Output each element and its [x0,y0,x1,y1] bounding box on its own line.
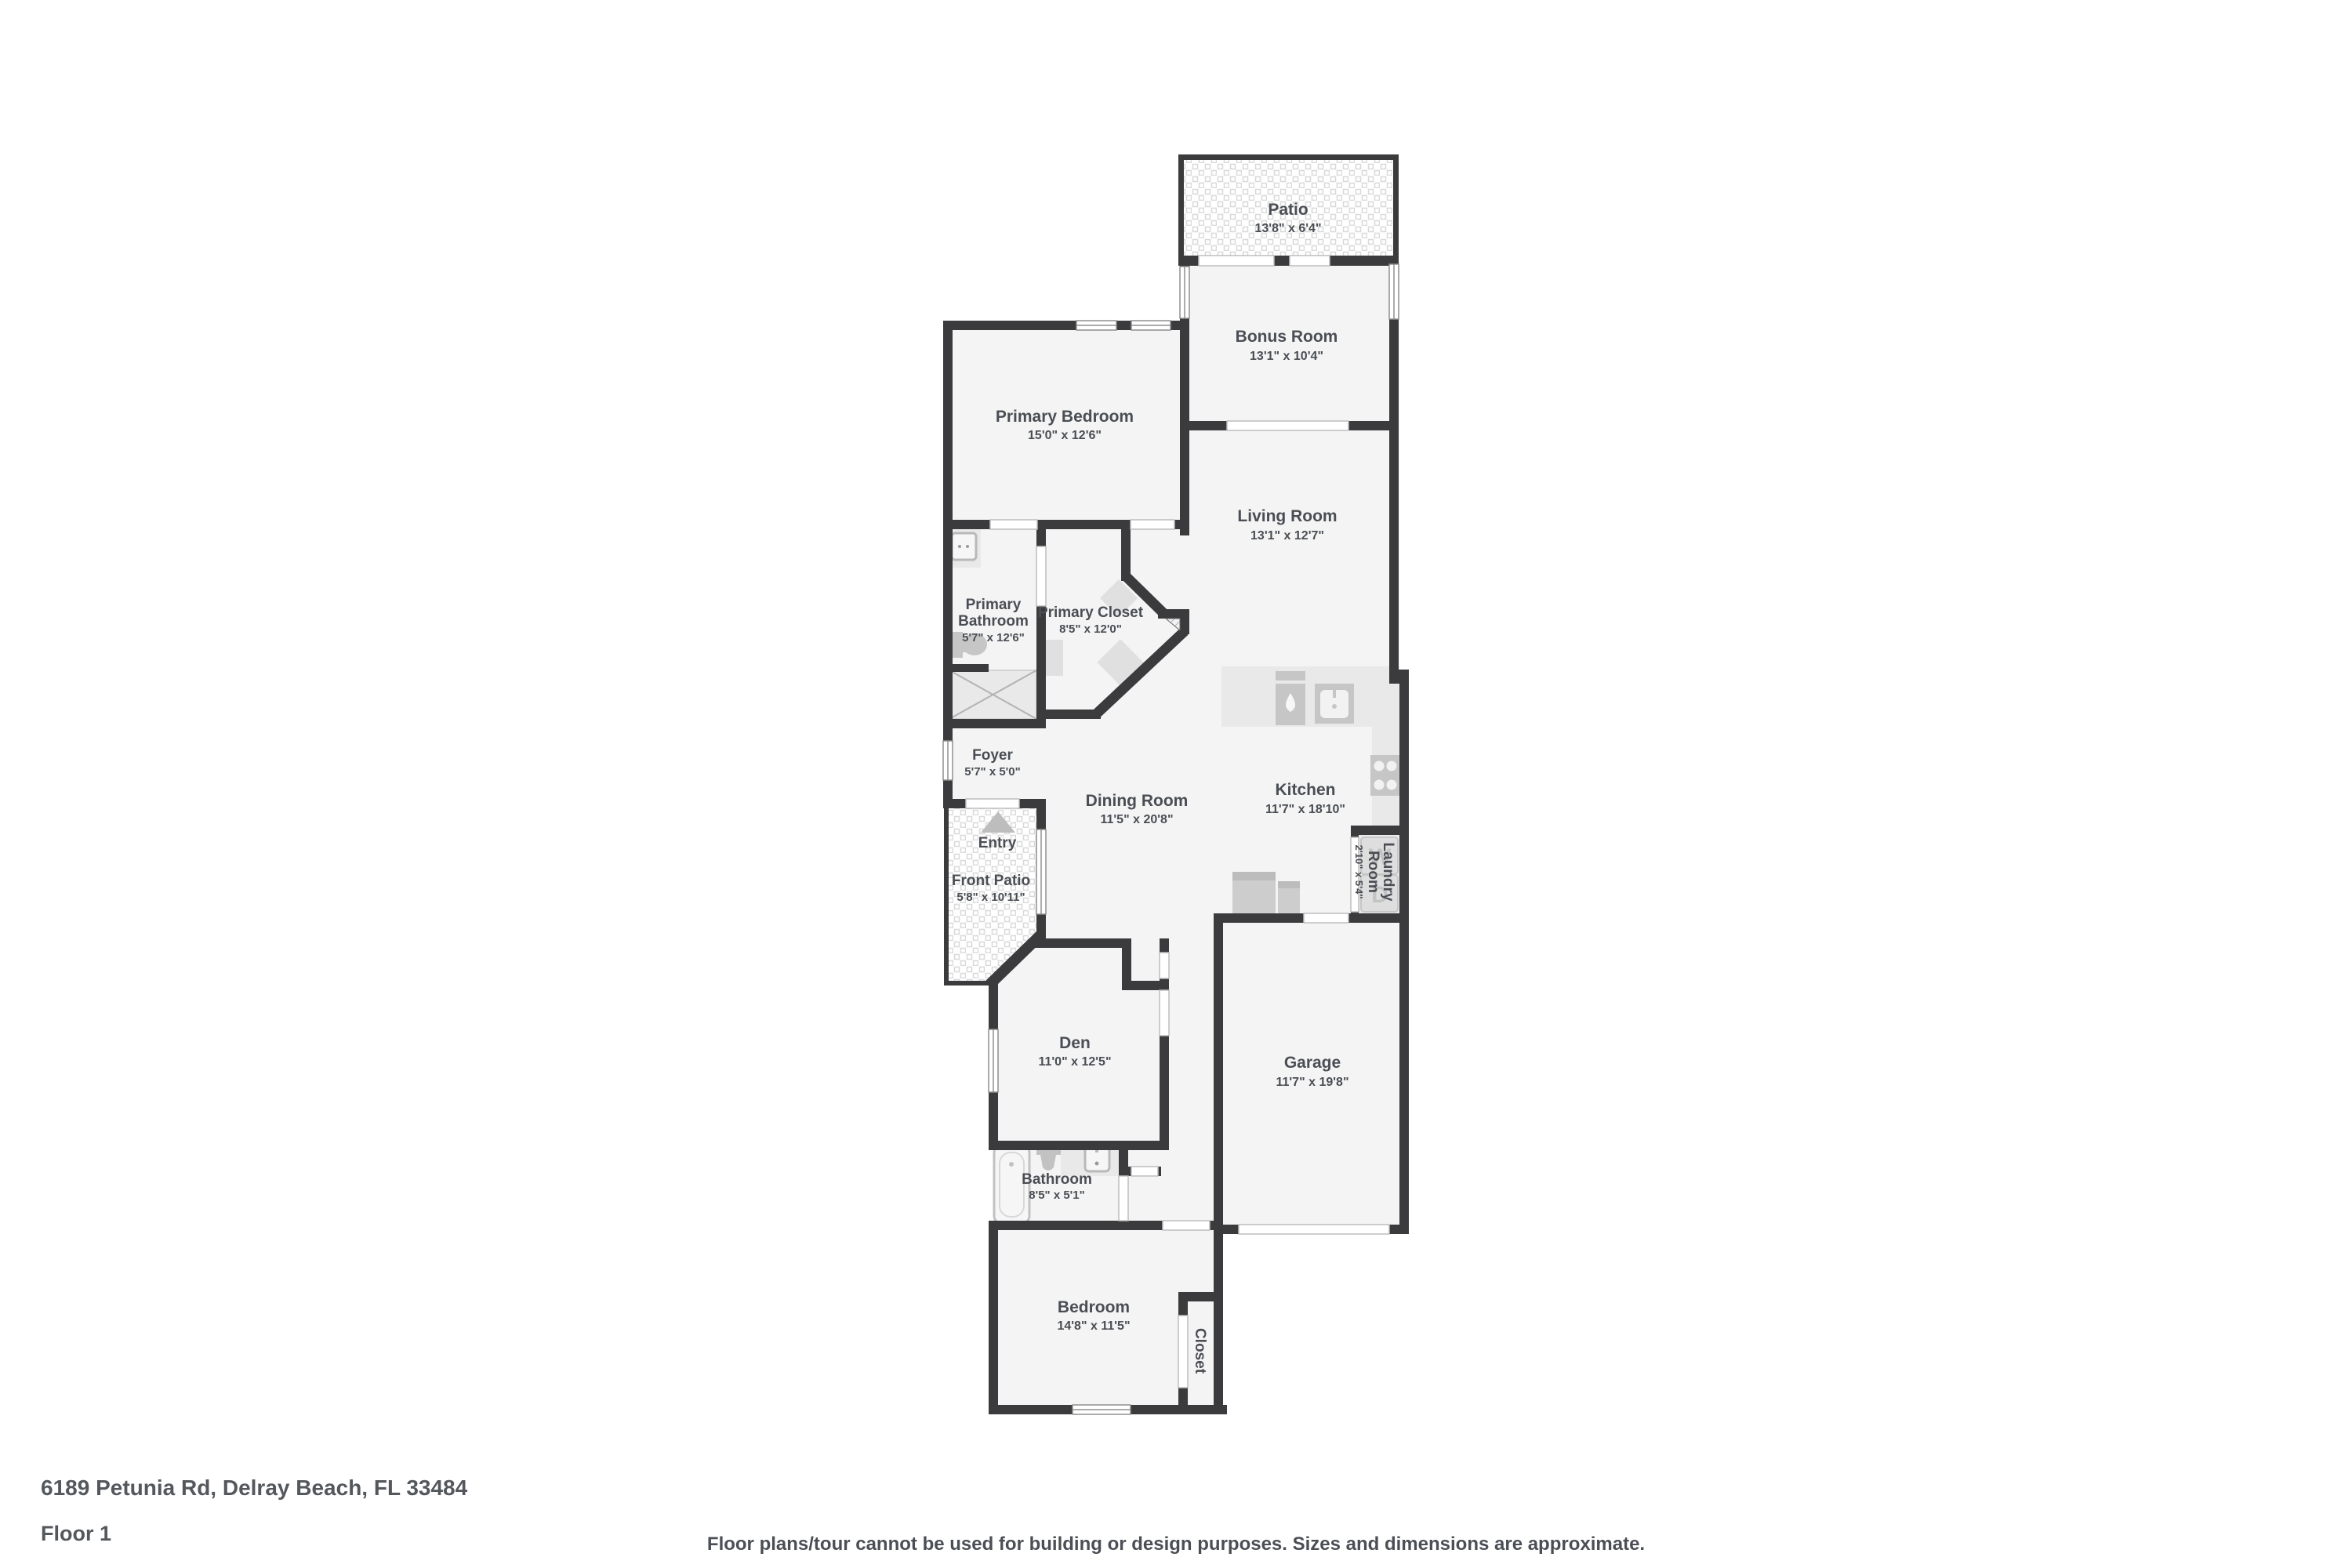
dining-room-dims: 11'5" x 20'8" [1100,813,1173,826]
property-address: 6189 Petunia Rd, Delray Beach, FL 33484 [41,1475,467,1501]
closet-label: Closet [1192,1328,1208,1374]
primary-bathroom-label-2: Bathroom [958,613,1029,630]
floorplan-page: W D [0,0,2352,1568]
stove-icon [1370,755,1399,796]
sink-icon [952,533,976,560]
disclaimer-text: Floor plans/tour cannot be used for buil… [0,1534,2352,1555]
primary-bedroom-label: Primary Bedroom [996,408,1134,426]
primary-bathroom-label-1: Primary [966,597,1022,613]
kitchen-counter [1221,666,1399,727]
living-room-dims: 13'1" x 12'7" [1250,529,1324,543]
den-dims: 11'0" x 12'5" [1038,1055,1111,1069]
primary-bedroom-dims: 15'0" x 12'6" [1028,429,1102,442]
bathroom-dims: 8'5" x 5'1" [1029,1189,1084,1202]
bedroom-label: Bedroom [1058,1298,1130,1316]
front-patio-label: Front Patio [952,873,1030,889]
entry-label: Entry [978,835,1017,851]
primary-closet-dims: 8'5" x 12'0" [1059,622,1122,636]
living-room-label: Living Room [1237,507,1337,525]
bonus-room-label: Bonus Room [1236,328,1338,346]
patio-label: Patio [1268,201,1308,219]
sink-icon [1085,1147,1109,1171]
kitchen-label: Kitchen [1275,781,1335,799]
garage-label: Garage [1284,1054,1341,1072]
kitchen-sink-icon [1315,684,1354,724]
shower-icon [949,670,1036,719]
laundry-room-dims: 2'10" x 5'4" [1353,844,1365,898]
kitchen-dims: 11'7" x 18'10" [1265,803,1345,816]
patio-dims: 13'8" x 6'4" [1254,222,1321,235]
dishwasher-icon [1276,671,1305,725]
bathroom-label: Bathroom [1022,1171,1092,1188]
foyer-dims: 5'7" x 5'0" [964,765,1020,779]
dining-room-label: Dining Room [1086,792,1189,810]
garage-door-opening [1239,1225,1389,1234]
primary-bathroom-dims: 5'7" x 12'6" [962,631,1025,644]
primary-closet-label: Primary Closet [1038,604,1144,621]
bonus-room-dims: 13'1" x 10'4" [1250,350,1323,363]
bedroom-dims: 14'8" x 11'5" [1057,1319,1130,1333]
floorplan-drawing: W D [0,0,2352,1568]
den-label: Den [1059,1034,1091,1052]
foyer-label: Foyer [972,747,1013,764]
garage-dims: 11'7" x 19'8" [1276,1076,1348,1089]
front-patio-dims: 5'8" x 10'11" [956,891,1025,904]
laundry-room-label-2: Room [1365,851,1381,893]
laundry-room-label-1: Laundry [1380,843,1396,902]
